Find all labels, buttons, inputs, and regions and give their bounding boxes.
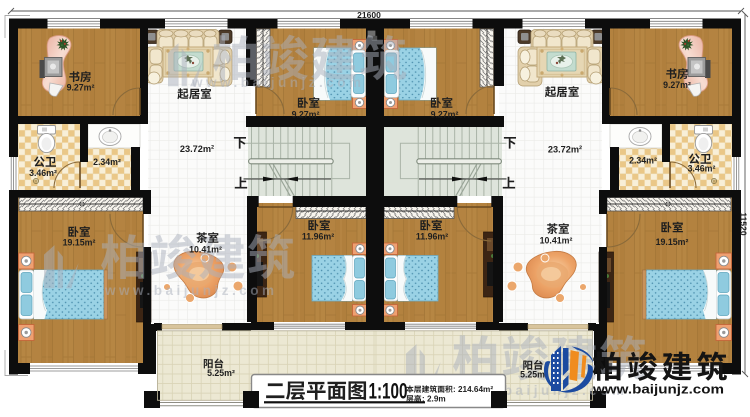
svg-text:9.27m²: 9.27m²: [67, 83, 95, 93]
svg-text:3.46m²: 3.46m²: [29, 168, 57, 178]
svg-text:11.96m²: 11.96m²: [302, 232, 334, 242]
svg-text:21600: 21600: [357, 10, 381, 20]
svg-text:1:100: 1:100: [369, 379, 408, 404]
svg-text:9.27m²: 9.27m²: [431, 110, 459, 120]
svg-text:214.64m²: 214.64m²: [458, 385, 493, 394]
svg-text:23.72m²: 23.72m²: [180, 144, 214, 154]
svg-text:www.baijunjz.com: www.baijunjz.com: [592, 383, 724, 397]
svg-text:9.27m²: 9.27m²: [663, 80, 691, 90]
svg-text::: :: [422, 395, 425, 404]
svg-text:23.72m²: 23.72m²: [548, 145, 582, 155]
svg-text:5.25m²: 5.25m²: [520, 370, 548, 380]
svg-text:19.15m²: 19.15m²: [63, 238, 96, 248]
svg-text:11.96m²: 11.96m²: [416, 232, 448, 242]
svg-text:9.27m²: 9.27m²: [292, 110, 320, 120]
svg-text:2.9m: 2.9m: [427, 395, 446, 404]
svg-text:3.46m²: 3.46m²: [688, 164, 716, 174]
svg-text:www.baijunjz.com: www.baijunjz.com: [104, 283, 278, 298]
svg-text:5.25m²: 5.25m²: [207, 368, 235, 378]
svg-text:10.41m²: 10.41m²: [540, 236, 573, 246]
svg-text:2.34m²: 2.34m²: [629, 156, 657, 166]
svg-text:11520: 11520: [739, 212, 749, 235]
svg-text:www.baijunjz.com: www.baijunjz.com: [191, 75, 365, 90]
svg-text::: :: [453, 385, 456, 394]
svg-text:10.41m²: 10.41m²: [189, 245, 222, 255]
svg-text:2.34m²: 2.34m²: [93, 157, 121, 167]
svg-text:19.15m²: 19.15m²: [656, 237, 689, 247]
